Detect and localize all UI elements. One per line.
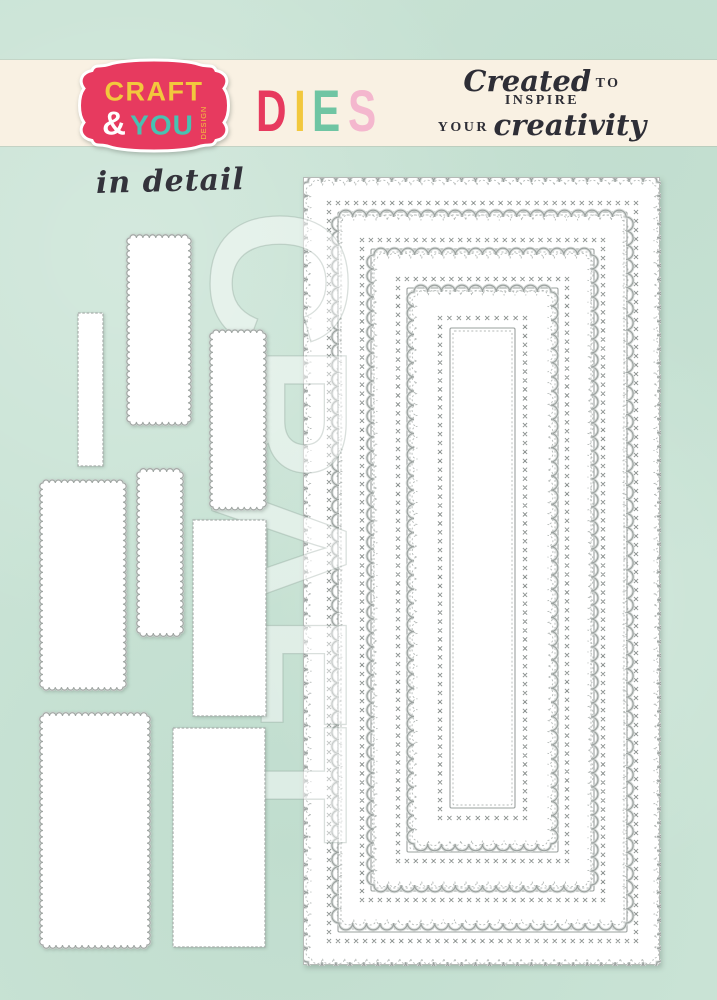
sample-die-scalloped <box>127 235 191 425</box>
product-title: DIES <box>256 74 383 136</box>
sample-die-stitched <box>193 520 266 716</box>
dies-letter: I <box>294 74 306 148</box>
die-set-panel <box>303 177 660 965</box>
sample-die-stitched <box>173 728 265 947</box>
sample-die-scalloped <box>210 330 266 510</box>
tagline-script-creativity: creativity <box>493 108 646 142</box>
dies-letter: E <box>312 74 340 148</box>
tagline-line1: Created to inspire <box>424 66 660 113</box>
logo-ampersand: & <box>102 105 126 142</box>
sample-die-scalloped <box>137 469 183 637</box>
sample-die-scalloped <box>40 713 150 948</box>
in-detail-label: in detail <box>96 162 246 201</box>
sample-die-stitched <box>78 313 103 466</box>
dies-letter: D <box>256 74 287 148</box>
tagline-caps-your: your <box>438 120 489 135</box>
tagline: Created to inspire your creativity <box>424 66 660 141</box>
die-set-graphic <box>304 178 661 966</box>
dies-letter: S <box>348 74 376 148</box>
tagline-line2: your creativity <box>424 110 660 140</box>
sample-die-scalloped <box>40 480 126 690</box>
logo-word-craft: CRAFT <box>105 77 204 107</box>
logo-word-design: DESIGN <box>199 106 208 140</box>
logo-word-you: YOU <box>130 110 194 141</box>
product-sheet: CRAFT CRAFT & YOU DESIGN DIES Created to… <box>0 0 717 1000</box>
brand-badge: CRAFT & YOU DESIGN <box>77 57 231 154</box>
